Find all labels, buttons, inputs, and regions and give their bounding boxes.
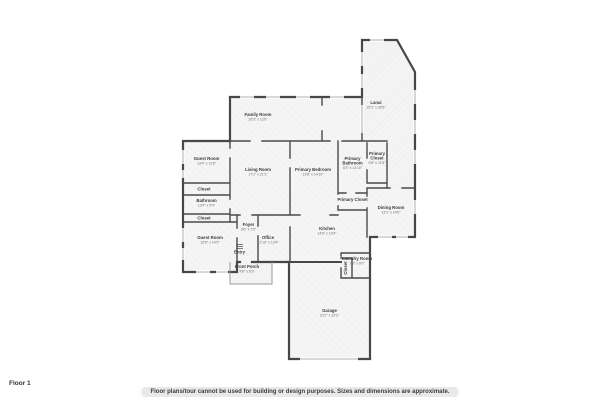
svg-text:12'10" x 13'4": 12'10" x 13'4" bbox=[257, 240, 279, 244]
room-label-guest-room-a: Guest Room13'4" x 11'8" bbox=[194, 156, 220, 165]
svg-text:6'6" x 7'5": 6'6" x 7'5" bbox=[241, 227, 257, 231]
svg-text:7'8" x 6'0": 7'8" x 6'0" bbox=[349, 261, 365, 265]
svg-text:13'4" x 11'8": 13'4" x 11'8" bbox=[197, 161, 217, 165]
svg-text:Living Room: Living Room bbox=[245, 167, 271, 172]
svg-text:Office: Office bbox=[262, 235, 275, 240]
svg-text:Closet: Closet bbox=[197, 216, 211, 221]
room-label-living-room: Living Room17'1" x 21'1" bbox=[245, 167, 271, 176]
room-label-guest-room-b: Guest Room15'5" x 14'3" bbox=[197, 235, 223, 244]
room-label-primary-closet-2: Primary Closet bbox=[337, 197, 368, 202]
svg-text:13'4" x 5'4": 13'4" x 5'4" bbox=[198, 203, 216, 207]
svg-text:15'5" x 14'3": 15'5" x 14'3" bbox=[200, 240, 220, 244]
svg-text:14'6" x 13'4": 14'6" x 13'4" bbox=[317, 231, 337, 235]
room-label-bathroom: Bathroom13'4" x 5'4" bbox=[196, 198, 216, 207]
svg-text:Dining Room: Dining Room bbox=[378, 205, 405, 210]
svg-text:Foyer: Foyer bbox=[243, 222, 255, 227]
svg-text:Lanai: Lanai bbox=[370, 100, 381, 105]
room-label-closet-a: Closet bbox=[197, 187, 211, 192]
svg-text:Closet: Closet bbox=[343, 261, 348, 275]
svg-text:17'1" x 21'1": 17'1" x 21'1" bbox=[248, 172, 268, 176]
svg-text:Primary Closet: Primary Closet bbox=[337, 197, 368, 202]
svg-text:Garage: Garage bbox=[322, 308, 337, 313]
room-label-kitchen: Kitchen14'6" x 13'4" bbox=[317, 226, 337, 235]
svg-text:Bathroom: Bathroom bbox=[196, 198, 216, 203]
svg-text:Laundry Room: Laundry Room bbox=[342, 256, 372, 261]
svg-text:Bathroom: Bathroom bbox=[342, 160, 362, 165]
floor-fills bbox=[183, 40, 415, 359]
room-label-closet-b: Closet bbox=[197, 216, 211, 221]
svg-text:Entry: Entry bbox=[234, 250, 246, 255]
room-label-entry: Entry bbox=[234, 250, 246, 255]
room-label-laundry-closet: Closet bbox=[343, 261, 348, 275]
floor-label: Floor 1 bbox=[9, 380, 31, 387]
disclaimer-text: Floor plans/tour cannot be used for buil… bbox=[141, 387, 458, 397]
room-label-dining-room: Dining Room13'1" x 14'0" bbox=[378, 205, 405, 214]
floorplan-page: Family Room26'3" x 12'6"Lanai15'1" x 29'… bbox=[0, 0, 600, 400]
svg-text:Closet: Closet bbox=[370, 155, 384, 160]
room-label-garage: Garage23'1" x 23'2" bbox=[320, 308, 340, 317]
svg-text:Guest Room: Guest Room bbox=[197, 235, 223, 240]
svg-text:Front Porch: Front Porch bbox=[235, 264, 260, 269]
svg-text:Primary Bedroom: Primary Bedroom bbox=[295, 167, 331, 172]
svg-text:26'3" x 12'6": 26'3" x 12'6" bbox=[248, 117, 268, 121]
svg-text:8'3" x 14'10": 8'3" x 14'10" bbox=[343, 166, 363, 170]
room-label-primary-bathroom: PrimaryBathroom8'3" x 14'10" bbox=[342, 156, 362, 170]
svg-text:Closet: Closet bbox=[197, 187, 211, 192]
svg-text:Family Room: Family Room bbox=[245, 112, 272, 117]
floorplan-svg: Family Room26'3" x 12'6"Lanai15'1" x 29'… bbox=[0, 0, 600, 400]
svg-text:Kitchen: Kitchen bbox=[319, 226, 335, 231]
svg-text:5'8" x 11'5": 5'8" x 11'5" bbox=[369, 161, 387, 165]
room-label-family-room: Family Room26'3" x 12'6" bbox=[245, 112, 272, 121]
svg-text:9'8" x 6'3": 9'8" x 6'3" bbox=[239, 269, 255, 273]
svg-text:13'8" x 14'10": 13'8" x 14'10" bbox=[302, 172, 324, 176]
svg-text:Guest Room: Guest Room bbox=[194, 156, 220, 161]
svg-text:23'1" x 23'2": 23'1" x 23'2" bbox=[320, 313, 340, 317]
svg-text:13'1" x 14'0": 13'1" x 14'0" bbox=[381, 210, 401, 214]
svg-text:15'1" x 29'5": 15'1" x 29'5" bbox=[366, 105, 386, 109]
